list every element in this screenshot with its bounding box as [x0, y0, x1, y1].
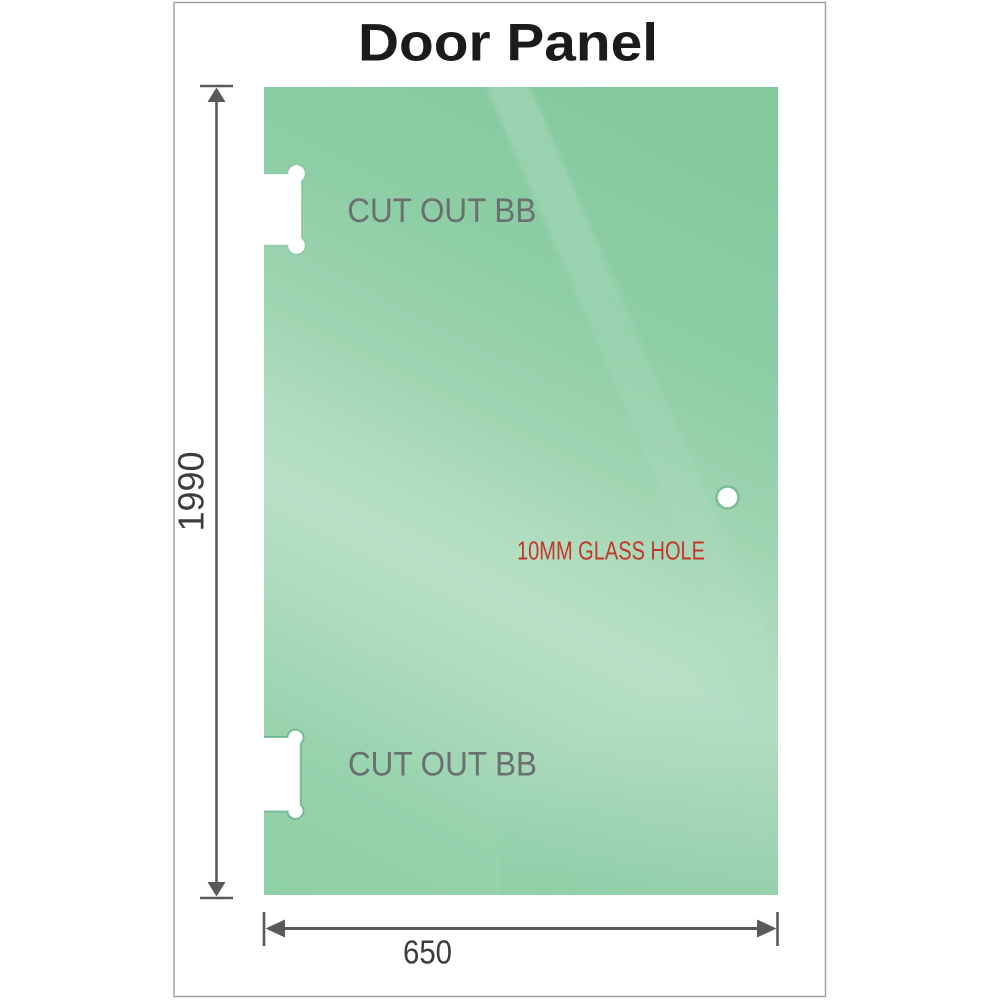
svg-text:10MM GLASS HOLE: 10MM GLASS HOLE	[517, 538, 705, 566]
svg-text:CUT OUT BB: CUT OUT BB	[348, 746, 537, 784]
svg-text:CUT OUT BB: CUT OUT BB	[347, 192, 536, 230]
svg-text:Door Panel: Door Panel	[358, 14, 658, 73]
svg-text:650: 650	[403, 934, 452, 971]
svg-text:1990: 1990	[171, 452, 212, 532]
